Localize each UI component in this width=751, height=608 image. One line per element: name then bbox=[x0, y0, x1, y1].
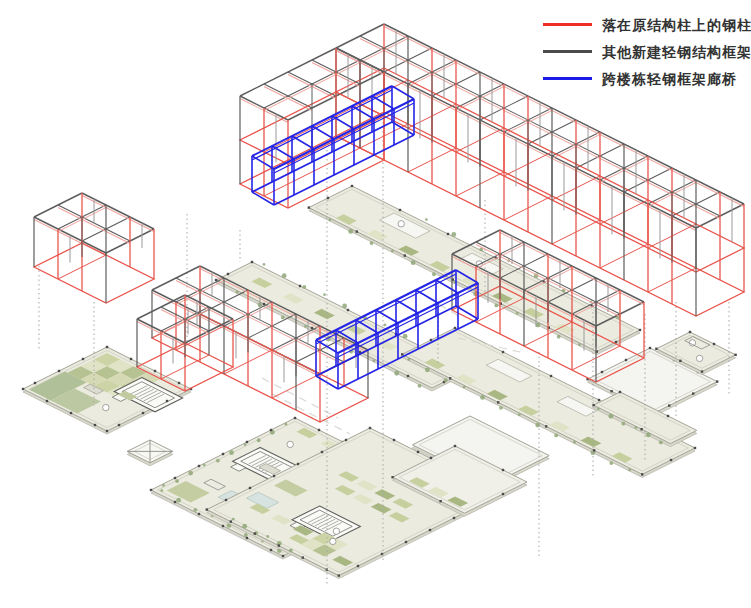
blue-line-swatch-icon bbox=[543, 77, 592, 80]
legend-item-new-light-steel-frame: 其他新建轻钢结构框架 bbox=[543, 43, 751, 60]
legend: 落在原结构柱上的钢柱 其他新建轻钢结构框架 跨楼栋轻钢框架廊桥 bbox=[543, 16, 751, 87]
gray-line-swatch-icon bbox=[543, 50, 592, 53]
architectural-axonometric-page: 落在原结构柱上的钢柱 其他新建轻钢结构框架 跨楼栋轻钢框架廊桥 bbox=[0, 0, 751, 608]
axonometric-drawing bbox=[0, 0, 751, 608]
legend-item-cross-building-bridge: 跨楼栋轻钢框架廊桥 bbox=[543, 70, 751, 87]
legend-label: 其他新建轻钢结构框架 bbox=[602, 45, 751, 59]
legend-label: 跨楼栋轻钢框架廊桥 bbox=[602, 72, 737, 86]
legend-item-original-structure-columns: 落在原结构柱上的钢柱 bbox=[543, 16, 751, 33]
red-line-swatch-icon bbox=[543, 23, 592, 26]
legend-label: 落在原结构柱上的钢柱 bbox=[602, 18, 751, 32]
